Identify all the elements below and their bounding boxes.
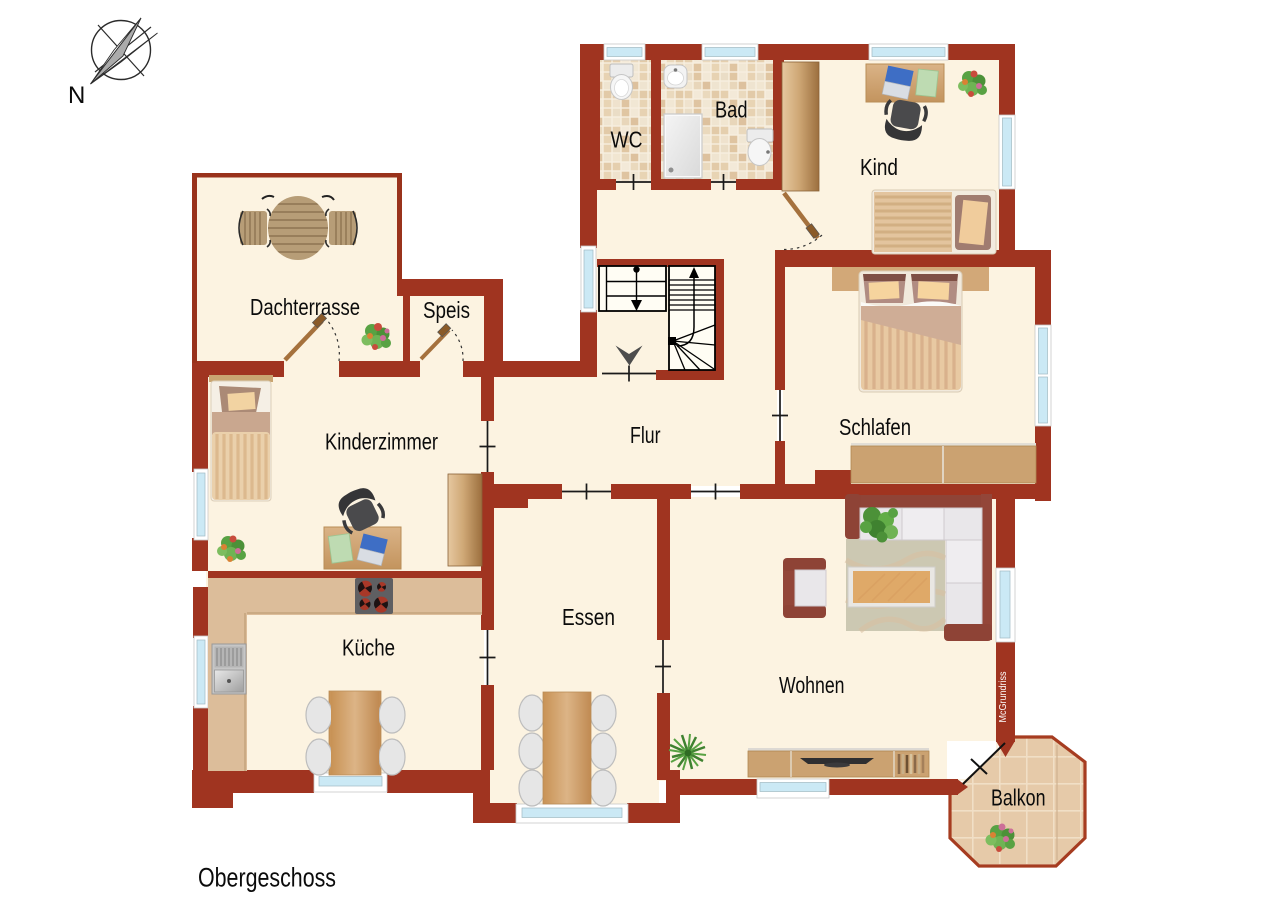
svg-text:Bad: Bad: [715, 97, 748, 123]
svg-text:N: N: [68, 82, 85, 109]
svg-text:Obergeschoss: Obergeschoss: [198, 863, 336, 893]
svg-text:Küche: Küche: [342, 635, 395, 661]
svg-text:Kind: Kind: [860, 154, 898, 180]
svg-text:Essen: Essen: [562, 604, 615, 630]
svg-text:Kinderzimmer: Kinderzimmer: [325, 429, 438, 455]
svg-text:Dachterrasse: Dachterrasse: [250, 294, 360, 320]
svg-text:Balkon: Balkon: [991, 785, 1046, 811]
svg-text:WC: WC: [611, 127, 643, 153]
svg-text:Speis: Speis: [423, 297, 470, 323]
svg-text:Wohnen: Wohnen: [779, 672, 845, 698]
svg-text:McGrundriss: McGrundriss: [997, 672, 1009, 723]
svg-text:Flur: Flur: [630, 422, 661, 448]
svg-text:Schlafen: Schlafen: [839, 414, 911, 440]
